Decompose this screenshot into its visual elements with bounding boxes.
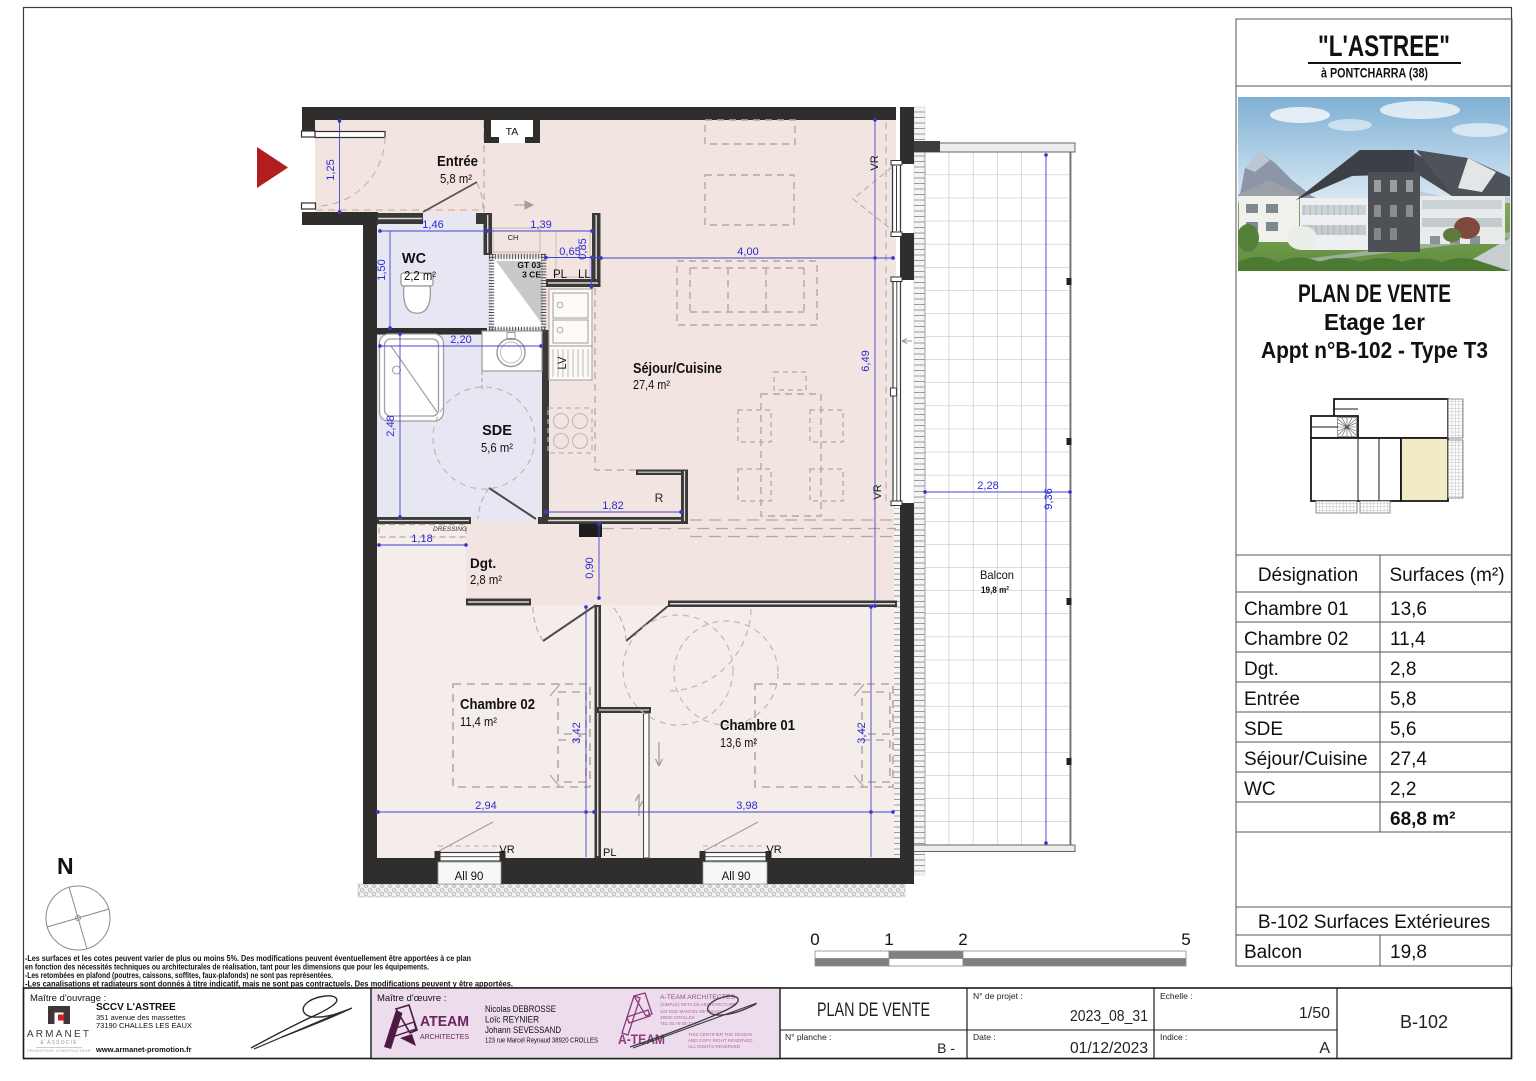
svg-text:PLAN DE VENTE: PLAN DE VENTE — [817, 1000, 930, 1021]
svg-text:ARCHITECTES: ARCHITECTES — [420, 1032, 469, 1041]
svg-text:LV: LV — [557, 356, 569, 370]
svg-text:01/12/2023: 01/12/2023 — [1070, 1040, 1148, 1057]
svg-text:SDE: SDE — [482, 423, 512, 439]
svg-text:Désignation: Désignation — [1258, 565, 1358, 586]
svg-text:LL: LL — [578, 269, 591, 281]
svg-text:SDE: SDE — [1244, 719, 1283, 740]
svg-text:B-102 Surfaces Extérieures: B-102 Surfaces Extérieures — [1258, 912, 1490, 933]
svg-text:123 rue Marcel Reynaud 38920 C: 123 rue Marcel Reynaud 38920 CROLLES — [485, 1036, 598, 1045]
svg-text:5,8 m²: 5,8 m² — [440, 172, 472, 186]
svg-text:1,82: 1,82 — [602, 500, 623, 512]
svg-text:& ASSOCIÉ: & ASSOCIÉ — [40, 1039, 77, 1046]
svg-text:N: N — [57, 853, 74, 879]
svg-text:All 90: All 90 — [722, 871, 751, 883]
svg-text:SCCV L'ASTREE: SCCV L'ASTREE — [96, 1002, 176, 1013]
svg-text:Indice :: Indice : — [1160, 1032, 1187, 1042]
svg-text:27,4: 27,4 — [1390, 749, 1427, 770]
svg-text:PLAN DE VENTE: PLAN DE VENTE — [1298, 280, 1451, 308]
svg-text:Chambre 01: Chambre 01 — [720, 717, 795, 734]
svg-text:WC: WC — [402, 251, 427, 267]
svg-text:3 CE: 3 CE — [522, 270, 541, 280]
svg-text:0,90: 0,90 — [584, 557, 596, 578]
svg-text:Chambre 02: Chambre 02 — [460, 696, 535, 713]
svg-text:38920 CROLLES: 38920 CROLLES — [660, 1015, 695, 1020]
svg-text:VR: VR — [499, 844, 514, 856]
svg-text:PROMOTEUR CONSTRUCTEUR: PROMOTEUR CONSTRUCTEUR — [27, 1049, 90, 1053]
svg-text:CH: CH — [508, 233, 519, 242]
svg-text:2,20: 2,20 — [450, 334, 471, 346]
svg-text:5: 5 — [1181, 930, 1190, 949]
svg-text:DRESSING: DRESSING — [433, 526, 467, 533]
svg-text:Loïc REYNIER: Loïc REYNIER — [485, 1015, 539, 1025]
svg-text:Séjour/Cuisine: Séjour/Cuisine — [1244, 749, 1368, 770]
svg-text:13,6 m²: 13,6 m² — [720, 736, 757, 750]
svg-text:A: A — [1319, 1040, 1330, 1057]
svg-text:9,36: 9,36 — [1043, 488, 1055, 509]
svg-text:13,6: 13,6 — [1390, 599, 1427, 620]
svg-text:11,4 m²: 11,4 m² — [460, 715, 497, 729]
svg-text:0,85: 0,85 — [577, 238, 589, 259]
svg-text:1,18: 1,18 — [411, 533, 432, 545]
svg-text:N° planche :: N° planche : — [785, 1032, 831, 1042]
svg-text:2,28: 2,28 — [977, 480, 998, 492]
svg-text:1,25: 1,25 — [325, 159, 337, 180]
svg-text:6,49: 6,49 — [860, 350, 872, 371]
svg-text:R: R — [655, 491, 664, 505]
svg-text:3,42: 3,42 — [856, 722, 868, 743]
svg-text:2,94: 2,94 — [475, 800, 496, 812]
svg-text:B-102: B-102 — [1400, 1012, 1448, 1032]
svg-text:2: 2 — [958, 930, 967, 949]
svg-text:68,8 m²: 68,8 m² — [1390, 809, 1455, 830]
svg-text:WC: WC — [1244, 779, 1276, 800]
svg-text:Appt n°B-102 - Type T3: Appt n°B-102 - Type T3 — [1261, 337, 1488, 363]
svg-text:2,48: 2,48 — [385, 415, 397, 436]
svg-text:1: 1 — [884, 930, 893, 949]
svg-text:Echelle :: Echelle : — [1160, 991, 1193, 1001]
svg-text:5,6: 5,6 — [1390, 719, 1416, 740]
svg-text:2023_08_31: 2023_08_31 — [1070, 1008, 1148, 1025]
svg-text:Chambre 01: Chambre 01 — [1244, 599, 1349, 620]
svg-text:Balcon: Balcon — [1244, 942, 1302, 963]
svg-text:ATEAM: ATEAM — [420, 1014, 469, 1030]
svg-text:5,8: 5,8 — [1390, 689, 1416, 710]
svg-text:11,4: 11,4 — [1390, 629, 1426, 650]
svg-text:Etage 1er: Etage 1er — [1324, 309, 1425, 335]
svg-text:123 RUE MARCEL REYNAUD: 123 RUE MARCEL REYNAUD — [660, 1009, 722, 1014]
svg-text:Chambre 02: Chambre 02 — [1244, 629, 1349, 650]
svg-text:ARMANET: ARMANET — [27, 1029, 91, 1040]
svg-text:Surfaces (m²): Surfaces (m²) — [1389, 565, 1504, 586]
svg-text:Entrée: Entrée — [437, 154, 478, 170]
svg-text:Nicolas DEBROSSE: Nicolas DEBROSSE — [485, 1004, 556, 1014]
svg-text:Maître d'ouvrage :: Maître d'ouvrage : — [30, 993, 106, 1004]
svg-text:Séjour/Cuisine: Séjour/Cuisine — [633, 360, 722, 377]
svg-text:27,4 m²: 27,4 m² — [633, 378, 670, 392]
svg-text:PL: PL — [553, 269, 568, 281]
svg-text:GT 03: GT 03 — [517, 260, 541, 270]
svg-text:B -: B - — [937, 1040, 955, 1056]
svg-text:VR: VR — [766, 844, 781, 856]
svg-text:"L'ASTREE": "L'ASTREE" — [1318, 30, 1450, 63]
svg-text:2,8 m²: 2,8 m² — [470, 573, 502, 587]
svg-text:VR: VR — [872, 484, 884, 499]
svg-text:73190 CHALLES LES EAUX: 73190 CHALLES LES EAUX — [96, 1021, 192, 1030]
svg-text:www.armanet-promotion.fr: www.armanet-promotion.fr — [95, 1045, 192, 1054]
svg-text:19,8 m²: 19,8 m² — [981, 585, 1009, 596]
svg-text:THIS CERTIFIER THE DESIGN: THIS CERTIFIER THE DESIGN — [688, 1032, 752, 1037]
svg-text:4,00: 4,00 — [737, 246, 758, 258]
svg-text:ALL RIGHTS RESERVED: ALL RIGHTS RESERVED — [688, 1044, 741, 1049]
svg-text:1,50: 1,50 — [376, 259, 388, 280]
svg-text:(SIMPLE) RETA DE ARCHITECTURE: (SIMPLE) RETA DE ARCHITECTURE — [660, 1002, 736, 1007]
svg-text:3,42: 3,42 — [571, 722, 583, 743]
svg-text:Dgt.: Dgt. — [470, 556, 496, 571]
svg-text:-Les canalisations et radiateu: -Les canalisations et radiateurs sont do… — [25, 980, 513, 989]
svg-text:1/50: 1/50 — [1299, 1005, 1330, 1022]
svg-text:TA: TA — [506, 126, 519, 138]
svg-text:1,46: 1,46 — [422, 219, 443, 231]
svg-text:All 90: All 90 — [455, 871, 484, 883]
svg-text:N° de projet :: N° de projet : — [973, 991, 1023, 1001]
svg-text:0: 0 — [810, 930, 819, 949]
svg-text:2,2 m²: 2,2 m² — [404, 269, 436, 283]
svg-text:Maître d'œuvre :: Maître d'œuvre : — [377, 993, 446, 1004]
svg-text:A-TEAM ARCHITECTES: A-TEAM ARCHITECTES — [660, 995, 735, 1001]
svg-text:5,6 m²: 5,6 m² — [481, 441, 513, 455]
svg-text:1,39: 1,39 — [530, 219, 551, 231]
svg-text:3,98: 3,98 — [736, 800, 757, 812]
svg-text:2,8: 2,8 — [1390, 659, 1416, 680]
svg-text:19,8: 19,8 — [1390, 942, 1427, 963]
svg-text:Dgt.: Dgt. — [1244, 659, 1279, 680]
svg-text:Johann SEVESSAND: Johann SEVESSAND — [485, 1025, 561, 1035]
svg-text:Balcon: Balcon — [980, 568, 1014, 582]
svg-text:Date :: Date : — [973, 1032, 996, 1042]
svg-text:PL: PL — [603, 847, 616, 859]
svg-text:Entrée: Entrée — [1244, 689, 1300, 710]
svg-text:à PONTCHARRA (38): à PONTCHARRA (38) — [1321, 66, 1428, 81]
svg-text:2,2: 2,2 — [1390, 779, 1416, 800]
svg-text:AND COPY RIGHT RESERVED: AND COPY RIGHT RESERVED — [688, 1038, 753, 1043]
